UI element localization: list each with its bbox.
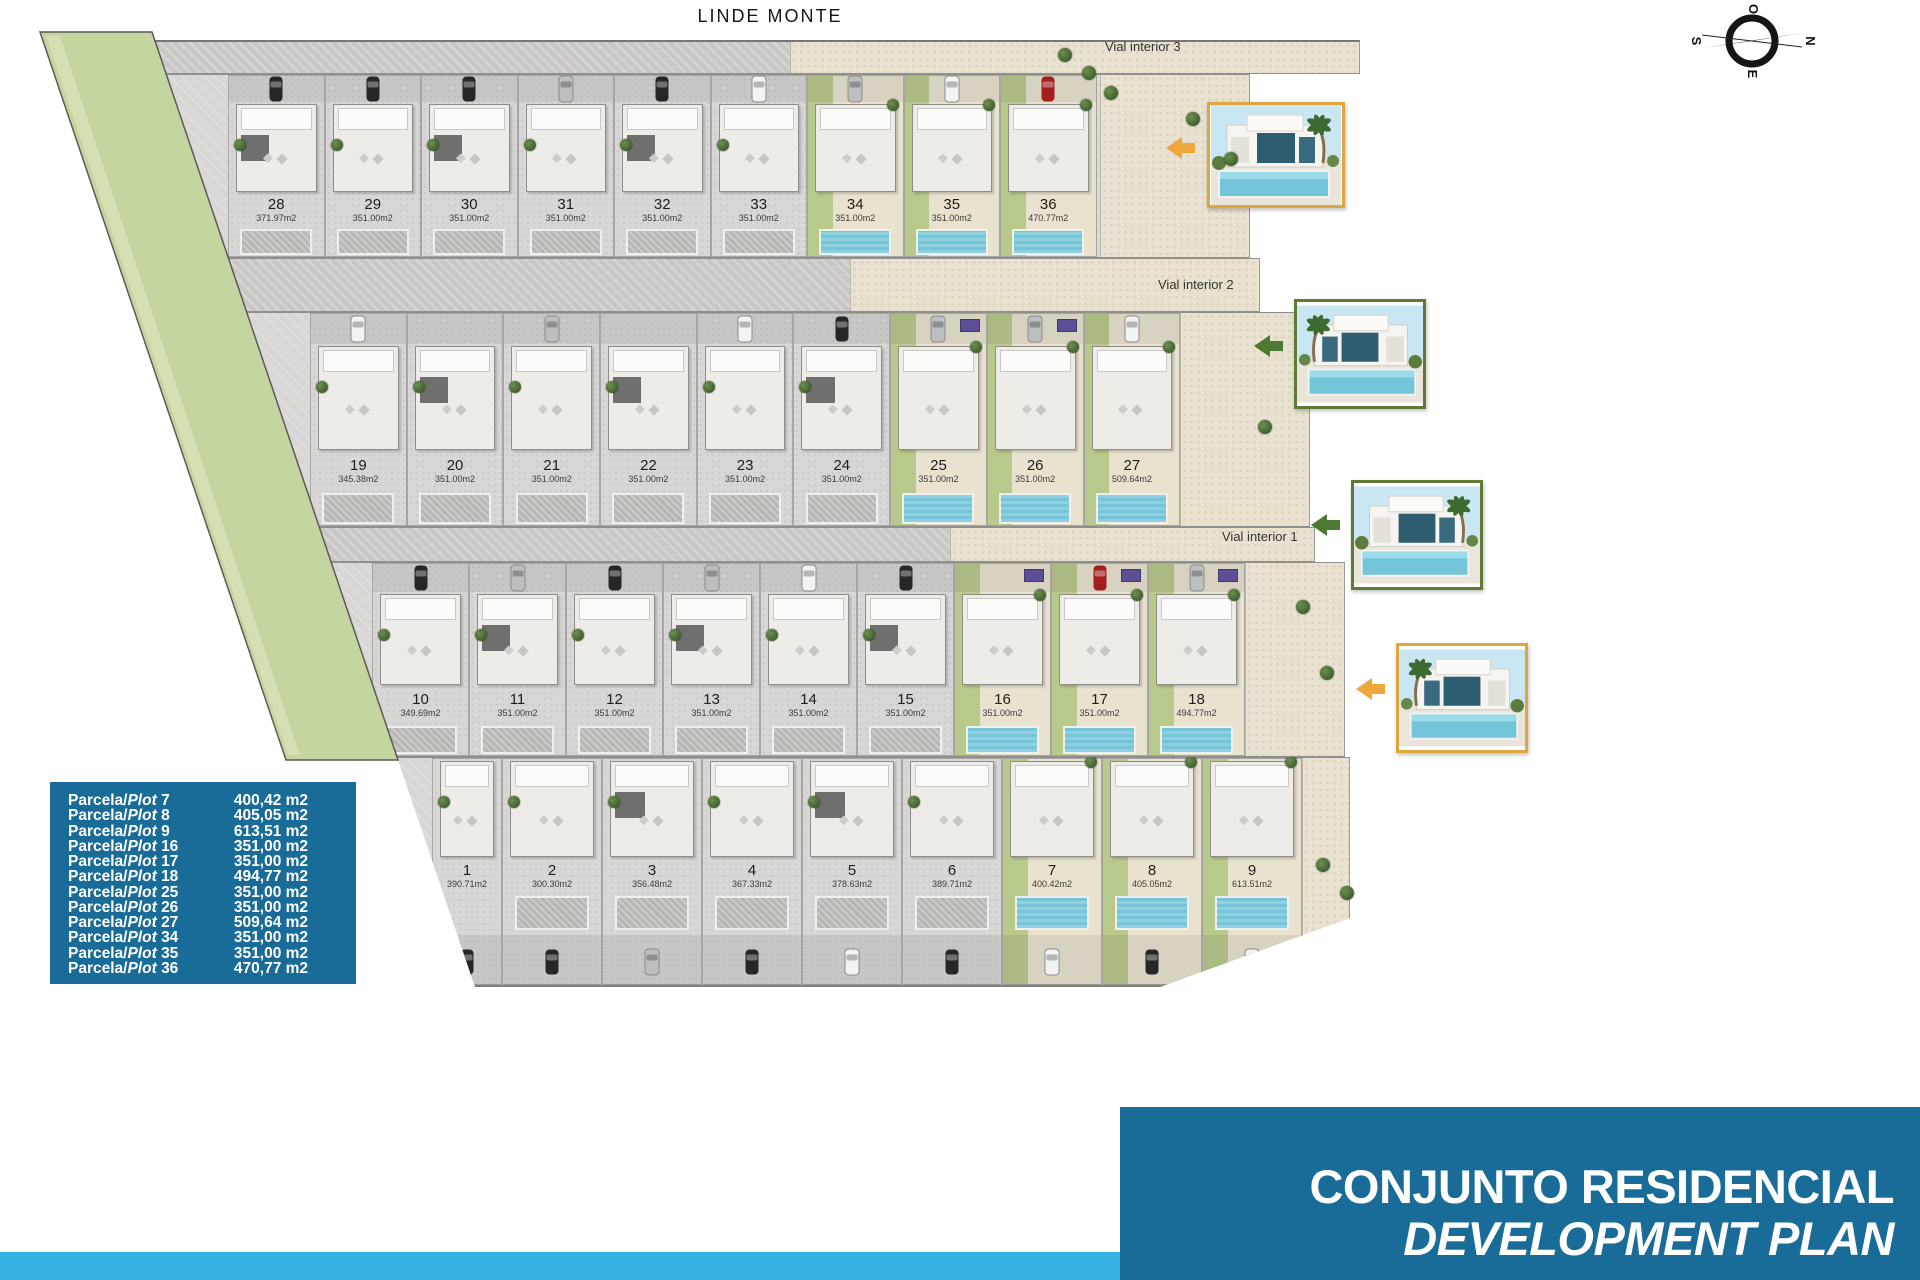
pool-icon xyxy=(1096,493,1168,524)
plot-14: 14351.00m2 xyxy=(760,563,857,756)
tree-icon xyxy=(1082,66,1096,80)
tree-icon xyxy=(1163,341,1175,353)
legend-row: Parcela/Plot 36470,77 m2 xyxy=(68,961,340,976)
legend-plot-area: 351,00 m2 xyxy=(234,946,340,961)
pool-pad-icon xyxy=(806,493,878,524)
plot-area: 351.00m2 xyxy=(712,213,807,223)
pool-pad-icon xyxy=(481,726,553,754)
plot-area: 509.64m2 xyxy=(1085,474,1180,484)
house-footprint xyxy=(415,346,496,450)
legend-row: Parcela/Plot 25351,00 m2 xyxy=(68,885,340,900)
plot-number: 16 xyxy=(955,692,1050,707)
plot-number: 4 xyxy=(703,863,801,878)
car-icon xyxy=(946,950,959,975)
pool-pad-icon xyxy=(869,726,941,754)
car-icon xyxy=(931,316,946,343)
house-footprint xyxy=(511,346,592,450)
plot-2: 2300.30m2 xyxy=(502,758,602,985)
tree-icon xyxy=(1186,112,1200,126)
pool-icon xyxy=(902,493,974,524)
car-icon xyxy=(645,949,660,976)
tree-icon xyxy=(1058,48,1072,62)
pool-icon xyxy=(1160,726,1232,754)
plot-22: 22351.00m2 xyxy=(600,313,697,526)
tree-icon xyxy=(475,629,487,641)
plot-33: 33351.00m2 xyxy=(711,75,808,257)
house-footprint xyxy=(962,594,1043,685)
plot-13: 13351.00m2 xyxy=(663,563,760,756)
plot-24: 24351.00m2 xyxy=(793,313,890,526)
green-verge xyxy=(0,0,420,780)
house-footprint xyxy=(910,761,994,857)
car-icon xyxy=(1124,316,1139,343)
plot-number: 9 xyxy=(1203,863,1301,878)
tree-icon xyxy=(1080,99,1092,111)
pool-icon xyxy=(1215,896,1290,930)
legend-plot-area: 351,00 m2 xyxy=(234,839,340,854)
plot-20: 20351.00m2 xyxy=(407,313,504,526)
pool-pad-icon xyxy=(815,896,890,930)
plot-area: 351.00m2 xyxy=(664,708,759,718)
tree-icon xyxy=(766,629,778,641)
pool-pad-icon xyxy=(709,493,781,524)
house-footprint xyxy=(671,594,752,685)
tree-icon xyxy=(887,99,899,111)
tree-icon xyxy=(1228,589,1240,601)
plot-number: 12 xyxy=(567,692,662,707)
title-line-1: CONJUNTO RESIDENCIAL xyxy=(1309,1161,1894,1214)
legend-plot-label: Parcela/Plot 35 xyxy=(68,946,234,961)
tree-icon xyxy=(620,139,632,151)
legend-plot-label: Parcela/Plot 9 xyxy=(68,824,234,839)
tree-icon xyxy=(1258,420,1272,434)
house-footprint xyxy=(810,761,894,857)
tree-icon xyxy=(863,629,875,641)
legend-plot-area: 351,00 m2 xyxy=(234,854,340,869)
house-footprint xyxy=(510,761,594,857)
plot-number: 23 xyxy=(698,458,793,473)
plot-area: 351.00m2 xyxy=(955,708,1050,718)
legend-plot-label: Parcela/Plot 17 xyxy=(68,854,234,869)
plot-23: 23351.00m2 xyxy=(697,313,794,526)
car-icon xyxy=(544,316,559,343)
tree-icon xyxy=(509,381,521,393)
car-icon xyxy=(558,76,573,103)
plot-number: 36 xyxy=(1001,197,1096,212)
pool-pad-icon xyxy=(615,896,690,930)
car-icon xyxy=(608,566,621,591)
car-icon xyxy=(704,565,719,592)
legend-plot-area: 351,00 m2 xyxy=(234,900,340,915)
plot-6: 6389.71m2 xyxy=(902,758,1002,985)
plot-3: 3356.48m2 xyxy=(602,758,702,985)
plot-17: 17351.00m2 xyxy=(1051,563,1148,756)
car-icon xyxy=(1245,949,1260,976)
tree-icon xyxy=(970,341,982,353)
house-footprint xyxy=(719,104,800,192)
tree-icon xyxy=(572,629,584,641)
pool-pad-icon xyxy=(675,726,747,754)
plot-area: 351.00m2 xyxy=(601,474,696,484)
legend-box: Parcela/Plot 7400,42 m2Parcela/Plot 8405… xyxy=(50,782,356,984)
villa-photo-3 xyxy=(1351,480,1483,590)
legend-row: Parcela/Plot 17351,00 m2 xyxy=(68,854,340,869)
plot-1: 1390.71m2 xyxy=(432,758,502,985)
legend-plot-area: 351,00 m2 xyxy=(234,930,340,945)
tree-icon xyxy=(1085,756,1097,768)
plot-area: 351.00m2 xyxy=(891,474,986,484)
plot-area: 351.00m2 xyxy=(808,213,903,223)
car-icon xyxy=(801,565,816,592)
pool-icon xyxy=(819,229,891,255)
compass-north-label: N xyxy=(1803,36,1818,45)
pool-pad-icon xyxy=(723,229,795,255)
plot-area: 390.71m2 xyxy=(433,879,501,889)
plot-31: 31351.00m2 xyxy=(518,75,615,257)
plot-area: 405.05m2 xyxy=(1103,879,1201,889)
car-icon xyxy=(944,76,959,103)
house-footprint xyxy=(705,346,786,450)
plot-number: 15 xyxy=(858,692,953,707)
car-icon xyxy=(848,76,863,103)
plot-area: 351.00m2 xyxy=(422,213,517,223)
plot-number: 31 xyxy=(519,197,614,212)
plot-number: 11 xyxy=(470,692,565,707)
car-icon xyxy=(461,950,474,975)
plot-number: 1 xyxy=(433,863,501,878)
row-2-pebble xyxy=(1180,313,1309,526)
pool-icon xyxy=(916,229,988,255)
tree-icon xyxy=(1067,341,1079,353)
plot-area: 300.30m2 xyxy=(503,879,601,889)
legend-plot-label: Parcela/Plot 36 xyxy=(68,961,234,976)
plot-number: 18 xyxy=(1149,692,1244,707)
legend-plot-label: Parcela/Plot 27 xyxy=(68,915,234,930)
house-footprint xyxy=(710,761,794,857)
plot-11: 11351.00m2 xyxy=(469,563,566,756)
plot-number: 30 xyxy=(422,197,517,212)
car-icon xyxy=(510,565,525,592)
tree-icon xyxy=(608,796,620,808)
car-icon xyxy=(463,77,476,102)
pool-icon xyxy=(999,493,1071,524)
tree-icon xyxy=(717,139,729,151)
tree-icon xyxy=(703,381,715,393)
legend-row: Parcela/Plot 18494,77 m2 xyxy=(68,869,340,884)
plot-number: 6 xyxy=(903,863,1001,878)
legend-row: Parcela/Plot 34351,00 m2 xyxy=(68,930,340,945)
tree-icon xyxy=(606,381,618,393)
pool-pad-icon xyxy=(530,229,602,255)
plot-area: 351.00m2 xyxy=(905,213,1000,223)
tree-icon xyxy=(708,796,720,808)
plot-number: 8 xyxy=(1103,863,1201,878)
plot-8: 8405.05m2 xyxy=(1102,758,1202,985)
house-footprint xyxy=(1210,761,1294,857)
car-icon xyxy=(1146,950,1159,975)
plot-30: 30351.00m2 xyxy=(421,75,518,257)
plot-area: 367.33m2 xyxy=(703,879,801,889)
street-label-vial-interior-3: Vial interior 3 xyxy=(1105,39,1181,54)
left-arrow-icon xyxy=(1311,514,1340,536)
legend-plot-area: 613,51 m2 xyxy=(234,824,340,839)
house-footprint xyxy=(622,104,703,192)
plot-area: 389.71m2 xyxy=(903,879,1001,889)
pool-icon xyxy=(1015,896,1090,930)
house-footprint xyxy=(815,104,896,192)
tree-icon xyxy=(1340,886,1354,900)
pool-icon xyxy=(1115,896,1190,930)
house-footprint xyxy=(912,104,993,192)
plot-number: 34 xyxy=(808,197,903,212)
pool-pad-icon xyxy=(915,896,990,930)
plot-number: 35 xyxy=(905,197,1000,212)
legend-row: Parcela/Plot 16351,00 m2 xyxy=(68,839,340,854)
house-footprint xyxy=(574,594,655,685)
house-footprint xyxy=(1110,761,1194,857)
plot-area: 351.00m2 xyxy=(858,708,953,718)
plot-number: 25 xyxy=(891,458,986,473)
legend-row: Parcela/Plot 9613,51 m2 xyxy=(68,824,340,839)
house-footprint xyxy=(898,346,979,450)
compass-east-label: E xyxy=(1745,70,1760,79)
tree-icon xyxy=(1034,589,1046,601)
tree-icon xyxy=(808,796,820,808)
plot-number: 3 xyxy=(603,863,701,878)
legend-row: Parcela/Plot 27509,64 m2 xyxy=(68,915,340,930)
plot-area: 351.00m2 xyxy=(567,708,662,718)
car-icon xyxy=(1093,566,1106,591)
plot-number: 21 xyxy=(504,458,599,473)
tree-icon xyxy=(1296,600,1310,614)
street-label-vial-interior-1: Vial interior 1 xyxy=(1222,529,1298,544)
plot-number: 7 xyxy=(1003,863,1101,878)
tree-icon xyxy=(1316,858,1330,872)
plot-area: 351.00m2 xyxy=(988,474,1083,484)
tree-icon xyxy=(1285,756,1297,768)
left-arrow-icon xyxy=(1356,678,1385,700)
tree-icon xyxy=(983,99,995,111)
plot-number: 33 xyxy=(712,197,807,212)
plot-32: 32351.00m2 xyxy=(614,75,711,257)
legend-row: Parcela/Plot 35351,00 m2 xyxy=(68,946,340,961)
plot-25: 25351.00m2 xyxy=(890,313,987,526)
car-icon xyxy=(1189,565,1204,592)
tree-icon xyxy=(427,139,439,151)
plot-number: 22 xyxy=(601,458,696,473)
car-icon xyxy=(1028,316,1043,343)
house-footprint xyxy=(1010,761,1094,857)
house-footprint xyxy=(477,594,558,685)
legend-plot-label: Parcela/Plot 26 xyxy=(68,900,234,915)
legend-plot-area: 470,77 m2 xyxy=(234,961,340,976)
pool-pad-icon xyxy=(515,896,590,930)
car-icon xyxy=(845,949,860,976)
plot-area: 351.00m2 xyxy=(1052,708,1147,718)
house-footprint xyxy=(801,346,882,450)
compass-south-label: S xyxy=(1690,37,1704,46)
legend-row: Parcela/Plot 26351,00 m2 xyxy=(68,900,340,915)
car-icon xyxy=(835,317,848,342)
plot-26: 26351.00m2 xyxy=(987,313,1084,526)
house-footprint xyxy=(995,346,1076,450)
row-3-pebble xyxy=(1245,563,1344,756)
plot-area: 613.51m2 xyxy=(1203,879,1301,889)
tree-icon xyxy=(438,796,450,808)
house-footprint xyxy=(1008,104,1089,192)
road-top-beige xyxy=(790,42,1359,73)
car-icon xyxy=(1042,77,1055,102)
pool-pad-icon xyxy=(433,229,505,255)
plot-area: 351.00m2 xyxy=(470,708,565,718)
plot-number: 32 xyxy=(615,197,710,212)
plot-number: 5 xyxy=(803,863,901,878)
plot-area: 351.00m2 xyxy=(408,474,503,484)
solar-panel-icon xyxy=(1218,569,1238,582)
legend-row: Parcela/Plot 7400,42 m2 xyxy=(68,793,340,808)
legend-plot-label: Parcela/Plot 25 xyxy=(68,885,234,900)
plot-area: 378.63m2 xyxy=(803,879,901,889)
house-footprint xyxy=(429,104,510,192)
plot-area: 356.48m2 xyxy=(603,879,701,889)
tree-icon xyxy=(508,796,520,808)
plot-36: 36470.77m2 xyxy=(1000,75,1097,257)
legend-plot-area: 400,42 m2 xyxy=(234,793,340,808)
car-icon xyxy=(751,76,766,103)
pool-pad-icon xyxy=(626,229,698,255)
legend-plot-label: Parcela/Plot 16 xyxy=(68,839,234,854)
plot-5: 5378.63m2 xyxy=(802,758,902,985)
pool-pad-icon xyxy=(578,726,650,754)
car-icon xyxy=(738,316,753,343)
plot-12: 12351.00m2 xyxy=(566,563,663,756)
pool-pad-icon xyxy=(772,726,844,754)
plot-number: 27 xyxy=(1085,458,1180,473)
compass-west-label: O xyxy=(1746,4,1761,14)
legend-row: Parcela/Plot 8405,05 m2 xyxy=(68,808,340,823)
plot-4: 4367.33m2 xyxy=(702,758,802,985)
plot-9: 9613.51m2 xyxy=(1202,758,1302,985)
car-icon xyxy=(1045,949,1060,976)
tree-icon xyxy=(1131,589,1143,601)
villa-photo-2 xyxy=(1294,299,1426,409)
plot-number: 26 xyxy=(988,458,1083,473)
plot-number: 20 xyxy=(408,458,503,473)
legend-plot-area: 509,64 m2 xyxy=(234,915,340,930)
tree-icon xyxy=(524,139,536,151)
plot-21: 21351.00m2 xyxy=(503,313,600,526)
villa-photo-4 xyxy=(1396,643,1528,753)
plot-number: 2 xyxy=(503,863,601,878)
solar-panel-icon xyxy=(960,319,980,332)
plot-18: 18494.77m2 xyxy=(1148,563,1245,756)
house-footprint xyxy=(608,346,689,450)
solar-panel-icon xyxy=(1024,569,1044,582)
street-label-vial-interior-2: Vial interior 2 xyxy=(1158,277,1234,292)
plot-area: 351.00m2 xyxy=(794,474,889,484)
plot-area: 351.00m2 xyxy=(698,474,793,484)
tree-icon xyxy=(1224,152,1238,166)
house-footprint xyxy=(865,594,946,685)
legend-plot-area: 351,00 m2 xyxy=(234,885,340,900)
plot-number: 14 xyxy=(761,692,856,707)
legend-plot-area: 494,77 m2 xyxy=(234,869,340,884)
legend-plot-area: 405,05 m2 xyxy=(234,808,340,823)
house-footprint xyxy=(1059,594,1140,685)
plot-7: 7400.42m2 xyxy=(1002,758,1102,985)
plot-15: 15351.00m2 xyxy=(857,563,954,756)
plot-area: 494.77m2 xyxy=(1149,708,1244,718)
house-footprint xyxy=(1092,346,1173,450)
left-arrow-icon xyxy=(1166,137,1195,159)
plot-area: 351.00m2 xyxy=(504,474,599,484)
pool-pad-icon xyxy=(612,493,684,524)
plot-34: 34351.00m2 xyxy=(807,75,904,257)
car-icon xyxy=(899,566,912,591)
car-icon xyxy=(656,77,669,102)
plot-area: 351.00m2 xyxy=(615,213,710,223)
pool-pad-icon xyxy=(516,493,588,524)
car-icon xyxy=(746,950,759,975)
solar-panel-icon xyxy=(1121,569,1141,582)
plot-number: 13 xyxy=(664,692,759,707)
plot-35: 35351.00m2 xyxy=(904,75,1001,257)
plot-area: 470.77m2 xyxy=(1001,213,1096,223)
plot-number: 17 xyxy=(1052,692,1147,707)
pool-icon xyxy=(1063,726,1135,754)
legend-plot-label: Parcela/Plot 18 xyxy=(68,869,234,884)
pool-icon xyxy=(966,726,1038,754)
footer-accent-bar xyxy=(0,1252,1120,1280)
plot-number: 24 xyxy=(794,458,889,473)
house-footprint xyxy=(610,761,694,857)
plot-area: 351.00m2 xyxy=(761,708,856,718)
car-icon xyxy=(546,950,559,975)
plot-27: 27509.64m2 xyxy=(1084,313,1181,526)
tree-icon xyxy=(1185,756,1197,768)
house-footprint xyxy=(440,761,494,857)
plot-area: 400.42m2 xyxy=(1003,879,1101,889)
left-arrow-icon xyxy=(1254,335,1283,357)
title-line-2: DEVELOPMENT PLAN xyxy=(1403,1213,1894,1266)
pool-pad-icon xyxy=(715,896,790,930)
plot-16: 16351.00m2 xyxy=(954,563,1051,756)
tree-icon xyxy=(669,629,681,641)
solar-panel-icon xyxy=(1057,319,1077,332)
pool-pad-icon xyxy=(419,493,491,524)
legend-plot-label: Parcela/Plot 34 xyxy=(68,930,234,945)
house-footprint xyxy=(526,104,607,192)
tree-icon xyxy=(1320,666,1334,680)
plot-area: 351.00m2 xyxy=(519,213,614,223)
legend-plot-label: Parcela/Plot 7 xyxy=(68,793,234,808)
compass-rose-icon: O N E S xyxy=(1690,2,1820,80)
title-block: CONJUNTO RESIDENCIAL DEVELOPMENT PLAN xyxy=(1120,1107,1920,1280)
house-footprint xyxy=(768,594,849,685)
tree-icon xyxy=(1104,86,1118,100)
legend-plot-label: Parcela/Plot 8 xyxy=(68,808,234,823)
tree-icon xyxy=(908,796,920,808)
house-footprint xyxy=(1156,594,1237,685)
pool-icon xyxy=(1012,229,1084,255)
